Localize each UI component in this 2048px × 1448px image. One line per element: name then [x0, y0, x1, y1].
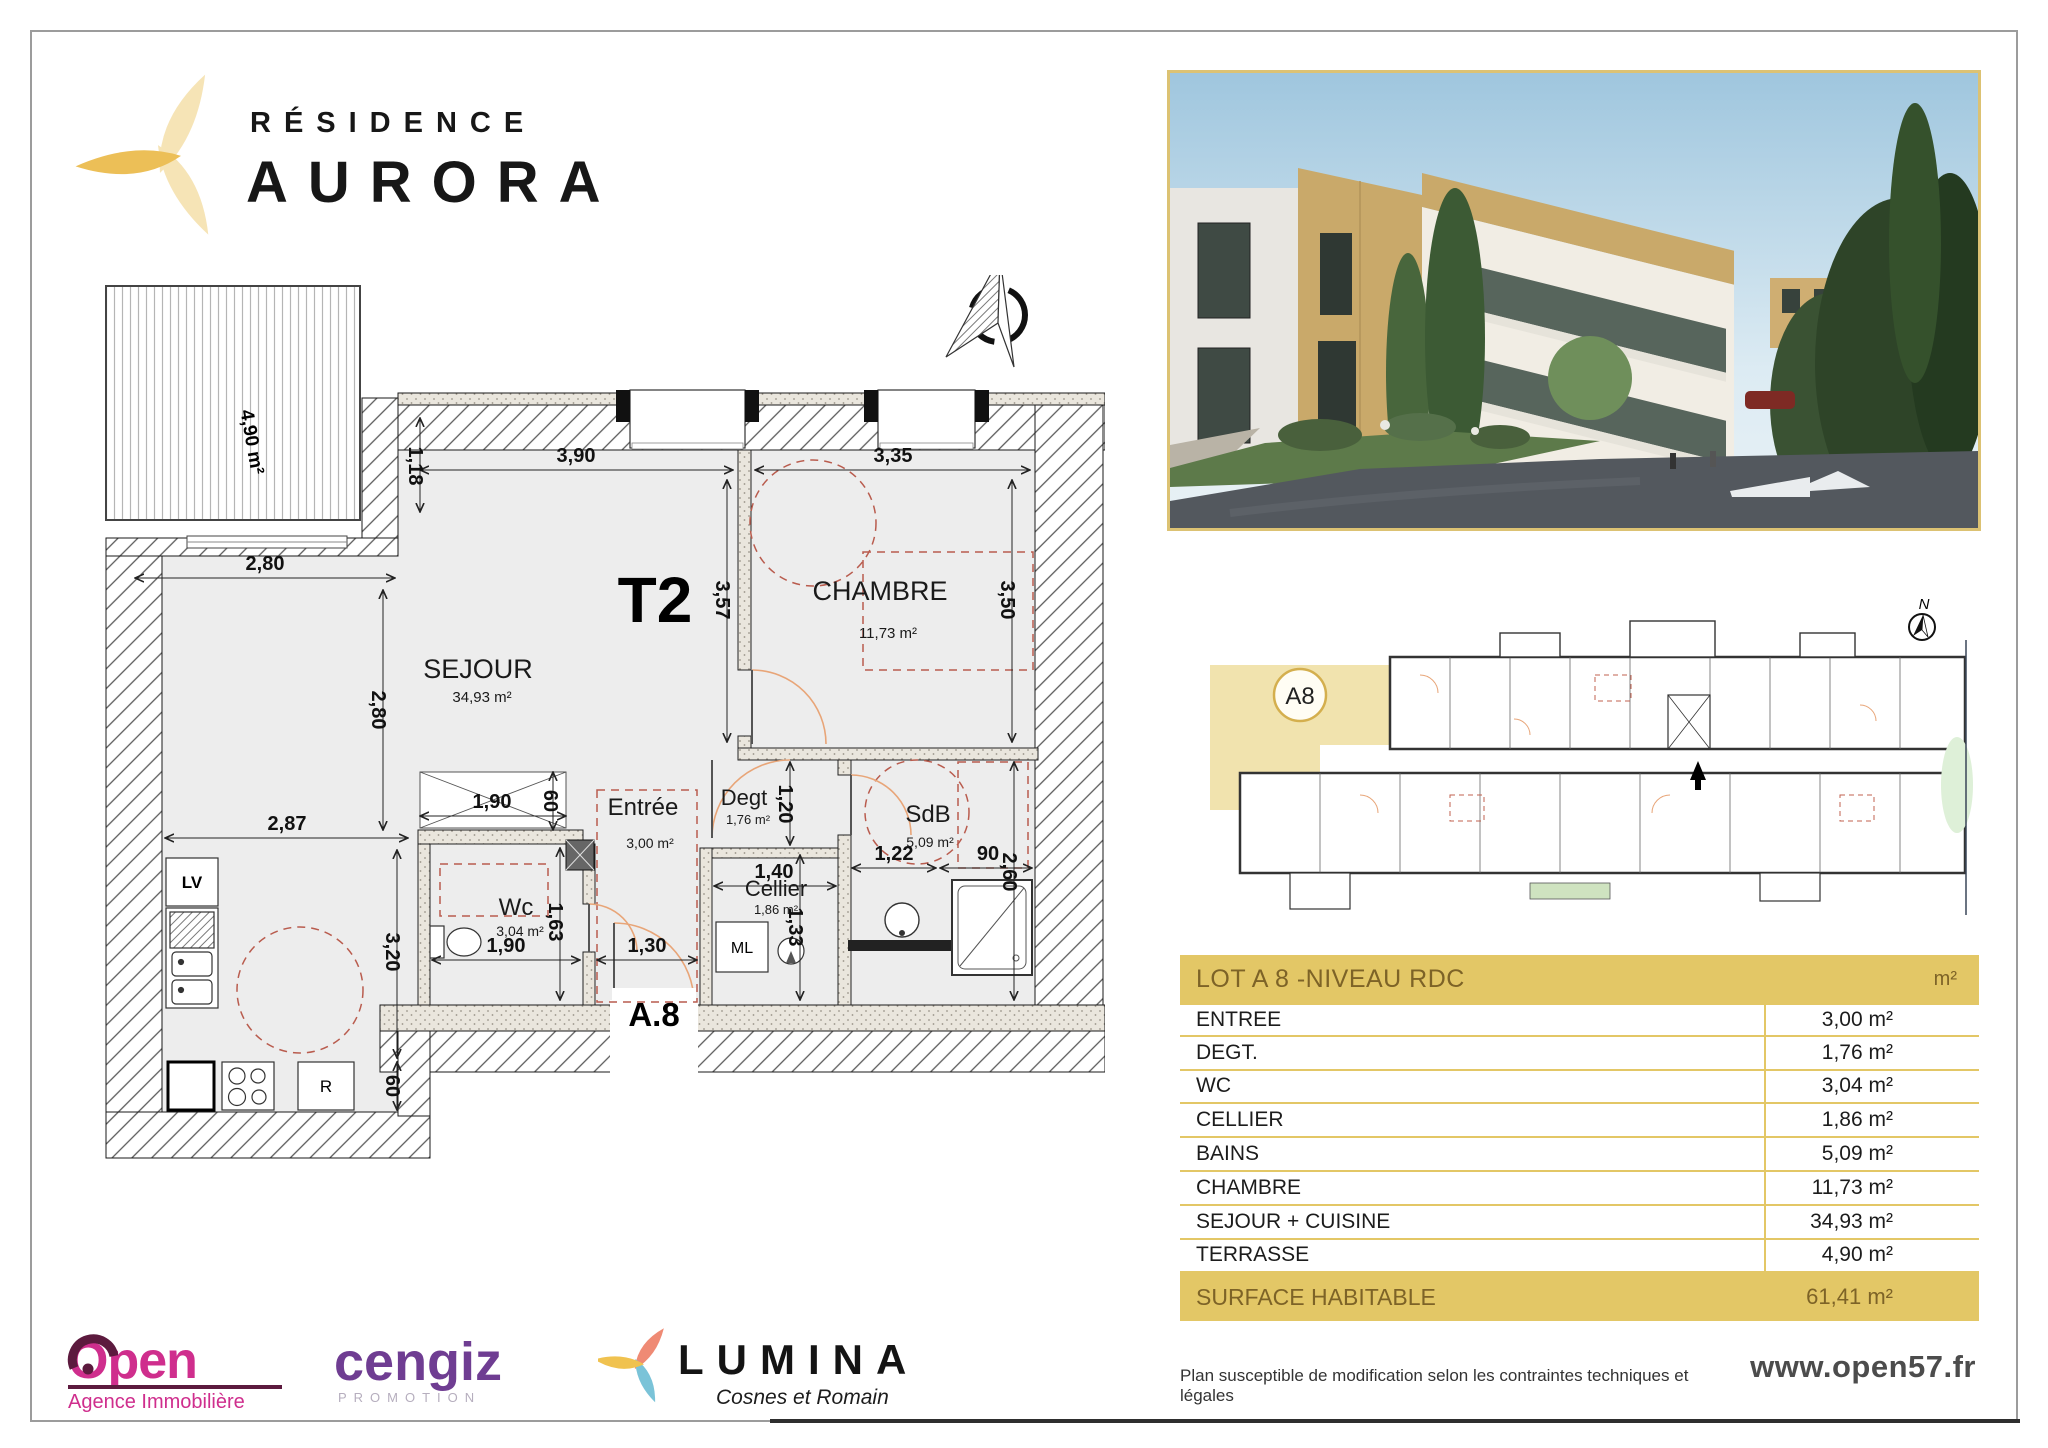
room-cellier-area: 1,86 m²	[754, 902, 799, 917]
fridge-label: R	[320, 1077, 332, 1096]
room-entree: Entrée	[608, 794, 679, 821]
svg-text:3,20: 3,20	[381, 933, 403, 972]
brand-line1: RÉSIDENCE	[250, 105, 536, 139]
room-wc-area: 3,04 m²	[496, 923, 544, 939]
table-column-divider	[1764, 1003, 1766, 1273]
brochure-page: RÉSIDENCE AURORA 4,90 m²	[0, 0, 2048, 1448]
website-url[interactable]: www.open57.fr	[1660, 1349, 1976, 1385]
legal-disclaimer: Plan susceptible de modification selon l…	[1180, 1366, 1740, 1406]
svg-text:60: 60	[539, 790, 561, 812]
room-entree-area: 3,00 m²	[626, 835, 674, 851]
svg-text:1,63: 1,63	[544, 903, 566, 942]
room-degt-area: 1,76 m²	[726, 812, 771, 827]
surface-habitable-value: 61,41 m²	[1806, 1284, 1957, 1310]
room-chambre: CHAMBRE	[812, 576, 947, 606]
washer-label: ML	[731, 940, 753, 957]
room-sejour-area: 34,93 m²	[452, 689, 511, 706]
room-sejour: SEJOUR	[423, 654, 533, 684]
terrace: 4,90 m²	[106, 286, 360, 520]
page-border-accent	[770, 1419, 2020, 1423]
svg-text:2,80: 2,80	[367, 691, 389, 730]
svg-text:1,90: 1,90	[473, 791, 512, 813]
table-row: SEJOUR + CUISINE 34,93 m²	[1180, 1206, 1979, 1240]
open-tagline: Agence Immobilière	[68, 1391, 245, 1412]
brand-line2: AURORA	[246, 150, 621, 215]
table-row: TERRASSE 4,90 m²	[1180, 1240, 1979, 1274]
table-row: WC 3,04 m²	[1180, 1071, 1979, 1105]
floor-plan: 4,90 m² A.8	[95, 275, 1105, 1175]
room-cellier: Cellier	[745, 876, 807, 901]
table-row: CHAMBRE 11,73 m²	[1180, 1172, 1979, 1206]
room-wc: Wc	[499, 894, 534, 921]
building-outline	[1240, 621, 1965, 909]
svg-text:1,30: 1,30	[628, 935, 667, 957]
area-table-body: ENTREE 3,00 m² DEGT. 1,76 m² WC 3,04 m² …	[1180, 1003, 1979, 1273]
svg-text:3,50: 3,50	[996, 581, 1018, 620]
room-degt: Degt	[721, 785, 767, 810]
svg-text:N: N	[1919, 596, 1930, 613]
unit-type-label: T2	[618, 564, 693, 636]
svg-text:2,87: 2,87	[268, 813, 307, 835]
dishwasher-label: LV	[182, 873, 203, 892]
table-row: DEGT. 1,76 m²	[1180, 1037, 1979, 1071]
residence-aurora-logo: RÉSIDENCE AURORA	[58, 50, 638, 250]
table-row: BAINS 5,09 m²	[1180, 1138, 1979, 1172]
architectural-render	[1170, 73, 1978, 528]
svg-text:3,57: 3,57	[711, 581, 733, 620]
svg-text:3,35: 3,35	[874, 445, 913, 467]
area-table-header: LOT A 8 -NIVEAU RDC m²	[1180, 955, 1979, 1003]
lumina-leaf-icon	[598, 1324, 667, 1404]
aurora-leaf-icon	[74, 69, 221, 239]
lot-title: LOT A 8 -NIVEAU RDC	[1196, 965, 1465, 994]
svg-text:90: 90	[977, 843, 999, 865]
lumina-logo: LUMINA Cosnes et Romain	[598, 1324, 928, 1416]
car	[1745, 391, 1795, 409]
room-chambre-area: 11,73 m²	[859, 625, 917, 642]
room-sdb: SdB	[905, 801, 950, 828]
lumina-tagline: Cosnes et Romain	[716, 1386, 889, 1409]
svg-text:1,20: 1,20	[774, 785, 796, 824]
svg-text:60: 60	[381, 1075, 403, 1097]
cengiz-tagline: PROMOTION	[338, 1390, 481, 1405]
surface-habitable-label: SURFACE HABITABLE	[1196, 1284, 1436, 1311]
site-compass-icon: N	[1909, 596, 1935, 640]
table-row: CELLIER 1,86 m²	[1180, 1104, 1979, 1138]
cengiz-promotion-logo: cengiz PROMOTION	[330, 1330, 580, 1410]
area-table-footer: SURFACE HABITABLE 61,41 m²	[1180, 1273, 1979, 1321]
unit-header: m²	[1934, 968, 1957, 991]
unit-a8-badge-label: A8	[1285, 683, 1314, 710]
compass-icon: N	[946, 275, 1031, 367]
structural-column	[566, 840, 594, 870]
table-row: ENTREE 3,00 m²	[1180, 1003, 1979, 1037]
area-table: LOT A 8 -NIVEAU RDC m² ENTREE 3,00 m² DE…	[1180, 955, 1979, 1321]
site-plan: A8 N	[1200, 585, 1975, 945]
wc-fixtures	[430, 926, 481, 958]
cengiz-logo-text: cengiz	[334, 1332, 502, 1392]
svg-text:1,18: 1,18	[404, 447, 426, 486]
open-agency-logo: Open Agence Immobilière	[62, 1328, 302, 1412]
room-sdb-area: 5,09 m²	[906, 834, 954, 850]
svg-text:2,60: 2,60	[998, 853, 1020, 892]
svg-text:2,80: 2,80	[246, 553, 285, 575]
svg-text:3,90: 3,90	[557, 445, 596, 467]
lumina-logo-text: LUMINA	[678, 1336, 919, 1383]
